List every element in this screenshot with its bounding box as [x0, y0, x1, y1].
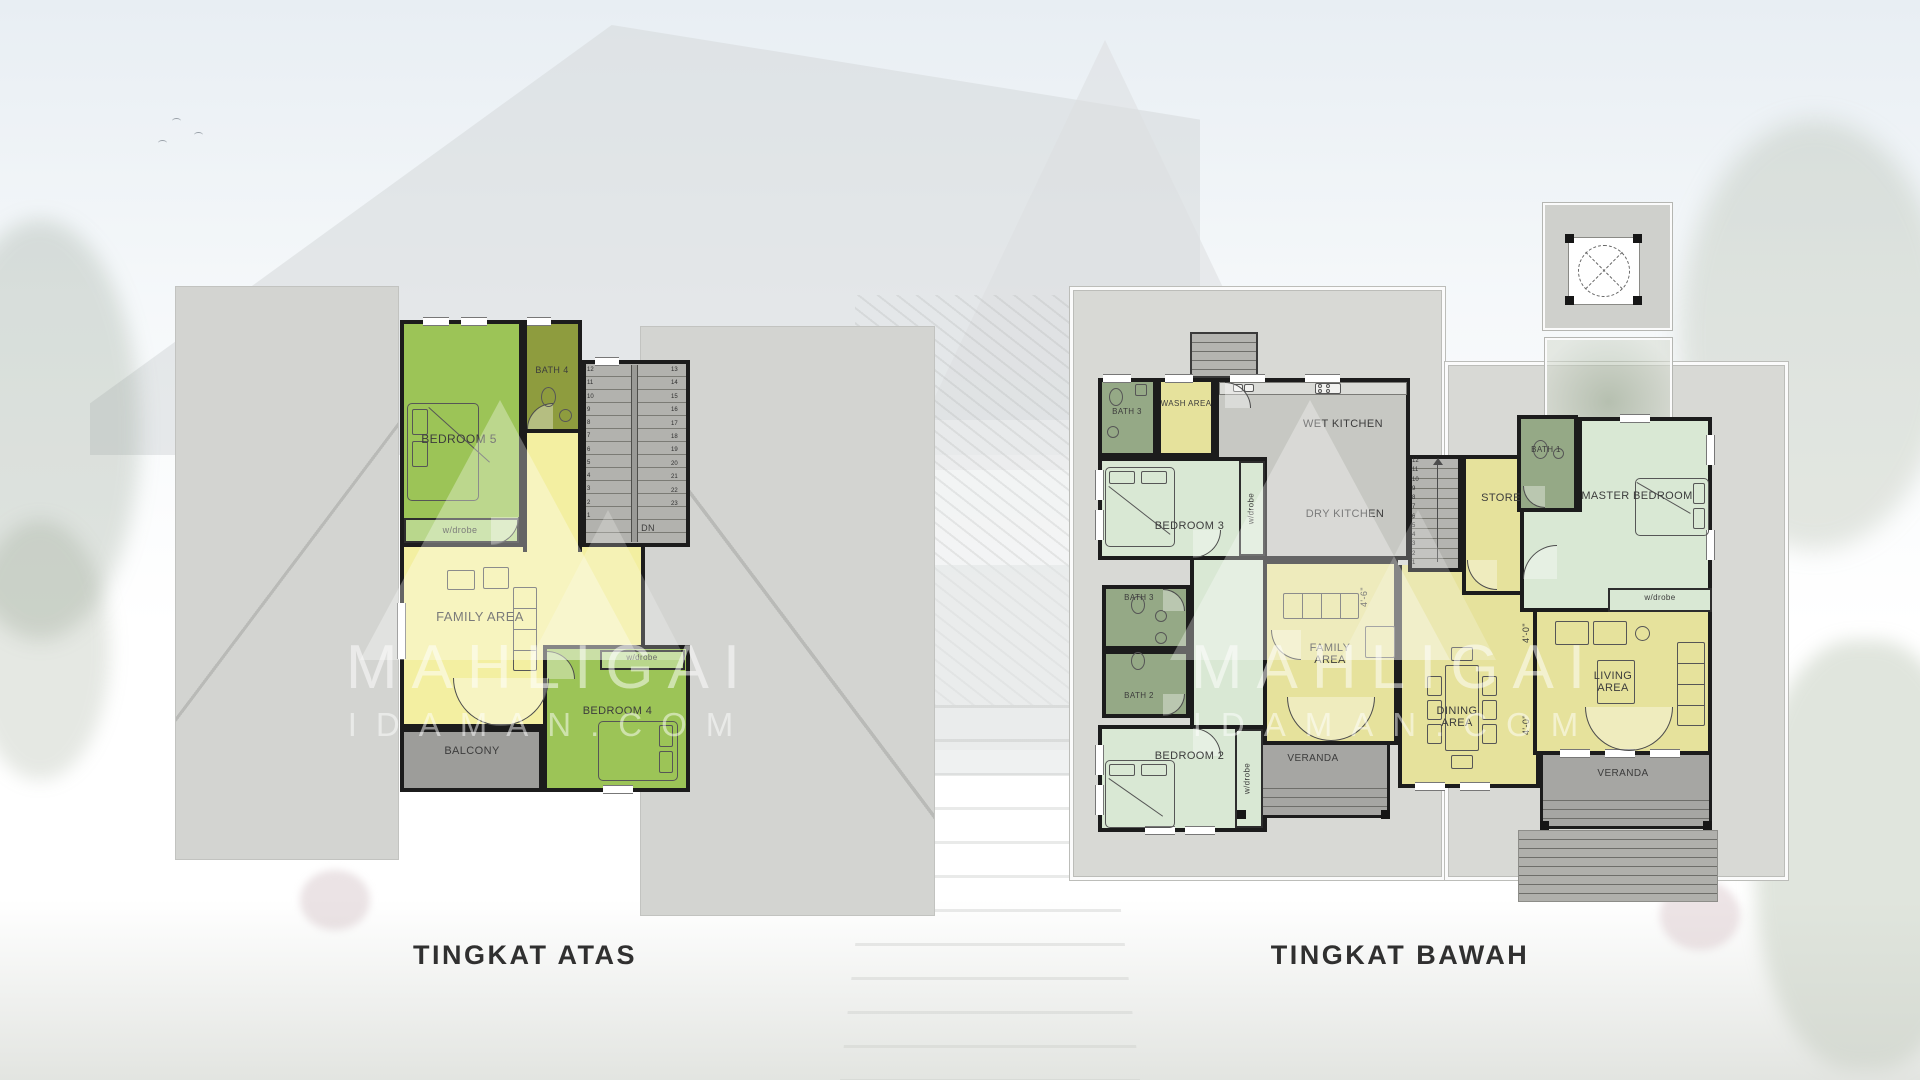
window	[1185, 826, 1215, 835]
window	[1095, 470, 1104, 500]
veranda-post	[1237, 810, 1246, 819]
stairs-arrow-stem	[1437, 464, 1438, 562]
window	[461, 317, 487, 326]
background-roof-tiles	[855, 295, 1070, 705]
upper-floor-plan: 121110987654321 1314151617181920212223 D…	[395, 315, 695, 795]
wardrobe-label-bedroom3: w/drobe	[1248, 483, 1257, 533]
room-bath3-top	[1098, 378, 1157, 457]
window	[1095, 510, 1104, 540]
bed-pillow	[1141, 764, 1167, 776]
sink	[1155, 610, 1167, 622]
window	[595, 357, 619, 366]
room-corridor-lower	[1190, 560, 1267, 745]
room-label-master: MASTER BEDROOM	[1577, 490, 1697, 502]
toilet	[1131, 652, 1145, 670]
background-flower-pot-left	[300, 870, 370, 930]
background-palm-left-2	[0, 520, 110, 780]
sofa-family-lower	[1283, 593, 1359, 619]
room-label-wet-kitchen: WET KITCHEN	[1303, 418, 1383, 430]
pergola-post	[1633, 234, 1642, 243]
dining-chair	[1427, 676, 1442, 696]
title-lower-floor: TINGKAT BAWAH	[1185, 940, 1615, 971]
bed-pillow	[1109, 764, 1135, 776]
toilet-bath4	[541, 387, 556, 407]
window	[1415, 782, 1445, 791]
living-armchair	[1555, 621, 1589, 645]
veranda-post	[1540, 821, 1549, 830]
sink	[1155, 632, 1167, 644]
dining-chair	[1451, 755, 1473, 769]
stairs-dn-label: DN	[633, 523, 663, 533]
room-label-store: STORE	[1465, 492, 1537, 504]
wardrobe-label-master: w/drobe	[1623, 594, 1697, 603]
entry-steps	[1190, 332, 1258, 378]
dining-chair	[1451, 647, 1473, 661]
dimension-label: 4'-6"	[1359, 580, 1369, 614]
pergola-post	[1565, 234, 1574, 243]
bed-pillow	[659, 751, 673, 773]
dining-chair	[1482, 676, 1497, 696]
window	[603, 785, 633, 794]
bed-pillow	[659, 725, 673, 747]
room-label-living: LIVING AREA	[1580, 670, 1646, 695]
stove-burner	[1318, 384, 1322, 388]
pergola-post	[1633, 296, 1642, 305]
floor-plan-poster: 121110987654321 1314151617181920212223 D…	[0, 0, 1920, 1080]
room-label-veranda-right: VERANDA	[1573, 768, 1673, 779]
stove-burner	[1318, 389, 1322, 393]
living-side-table	[1635, 626, 1650, 641]
room-wash-area	[1157, 378, 1215, 457]
stairs-arrow-head	[1433, 458, 1443, 465]
lower-floor-plan: 121110987654321 4'-6" 4'-0" 4'-0" BATH 3…	[1065, 200, 1805, 910]
window	[423, 317, 449, 326]
stove-burner	[1326, 389, 1330, 393]
side-table-family	[483, 567, 509, 589]
room-label-bath3-top: BATH 3	[1098, 408, 1156, 417]
room-label-bath3-mid: BATH 3	[1107, 594, 1171, 603]
living-sofa	[1677, 642, 1705, 726]
background-lawn	[0, 900, 1920, 1080]
room-label-bedroom5: BEDROOM 5	[403, 433, 515, 446]
window	[1706, 435, 1715, 465]
room-label-bedroom2: BEDROOM 2	[1127, 750, 1252, 762]
toilet	[1109, 388, 1123, 406]
wardrobe-label-bedroom5: w/drobe	[415, 525, 505, 535]
title-upper-floor: TINGKAT ATAS	[370, 940, 680, 971]
washer	[1135, 384, 1147, 396]
room-label-family-lower: FAMILY AREA	[1293, 642, 1367, 667]
window	[1650, 749, 1680, 758]
living-armchair	[1593, 621, 1627, 645]
room-label-bedroom4: BEDROOM 4	[560, 705, 675, 717]
dimension-label: 4'-0"	[1521, 708, 1531, 742]
wardrobe-label-bedroom4: w/drobe	[607, 654, 677, 663]
room-label-dining: DINING AREA	[1425, 705, 1489, 730]
stair-numbers-lower: 121110987654321	[1412, 458, 1419, 566]
bed-pillow	[1109, 471, 1135, 484]
room-label-bath2: BATH 2	[1107, 692, 1171, 701]
stair-numbers-right-upper: 1314151617181920212223	[671, 367, 678, 507]
wardrobe-label-bedroom2: w/drobe	[1244, 753, 1253, 803]
room-label-bath4: BATH 4	[523, 365, 581, 375]
window	[1095, 785, 1104, 815]
kitchen-sink	[1244, 384, 1254, 392]
bed-pillow	[1693, 508, 1705, 529]
room-label-bath1: BATH 1	[1517, 446, 1575, 455]
veranda-right-steps	[1543, 792, 1709, 826]
veranda-post	[1703, 821, 1712, 830]
bird-icon	[158, 140, 167, 146]
sink	[1107, 426, 1119, 438]
roof-panel-left	[175, 286, 399, 860]
window	[1460, 782, 1490, 791]
bird-icon	[172, 118, 181, 124]
pergola-post	[1565, 296, 1574, 305]
window	[397, 603, 406, 659]
apron-veranda-steps	[1518, 830, 1718, 902]
bench-family-upper	[447, 570, 475, 590]
background-palm-left	[0, 220, 140, 640]
window	[1095, 745, 1104, 775]
sink-bath4	[559, 409, 572, 422]
room-label-dry-kitchen: DRY KITCHEN	[1305, 508, 1385, 520]
background-porch	[770, 565, 1100, 775]
room-corridor-upper	[523, 433, 582, 552]
room-label-family-upper: FAMILY AREA	[435, 610, 525, 625]
stair-numbers-left-upper: 121110987654321	[587, 367, 594, 519]
window	[527, 317, 551, 326]
room-label-balcony: BALCONY	[413, 745, 531, 757]
bed-pillow	[1141, 471, 1167, 484]
dimension-label: 4'-0"	[1521, 616, 1531, 650]
sofa-family-upper	[513, 587, 537, 671]
window	[1560, 749, 1590, 758]
window	[1620, 414, 1650, 423]
room-label-bedroom3: BEDROOM 3	[1127, 520, 1252, 532]
room-label-wash: WASH AREA	[1159, 400, 1213, 409]
window	[1165, 374, 1193, 383]
room-balcony	[400, 728, 543, 792]
window	[1103, 374, 1131, 383]
stove-burner	[1326, 384, 1330, 388]
stairs-divider-upper	[631, 365, 638, 542]
veranda-post	[1381, 810, 1390, 819]
armchair-family-lower	[1365, 626, 1395, 658]
bird-icon	[194, 132, 203, 138]
room-label-veranda-left: VERANDA	[1263, 753, 1363, 764]
